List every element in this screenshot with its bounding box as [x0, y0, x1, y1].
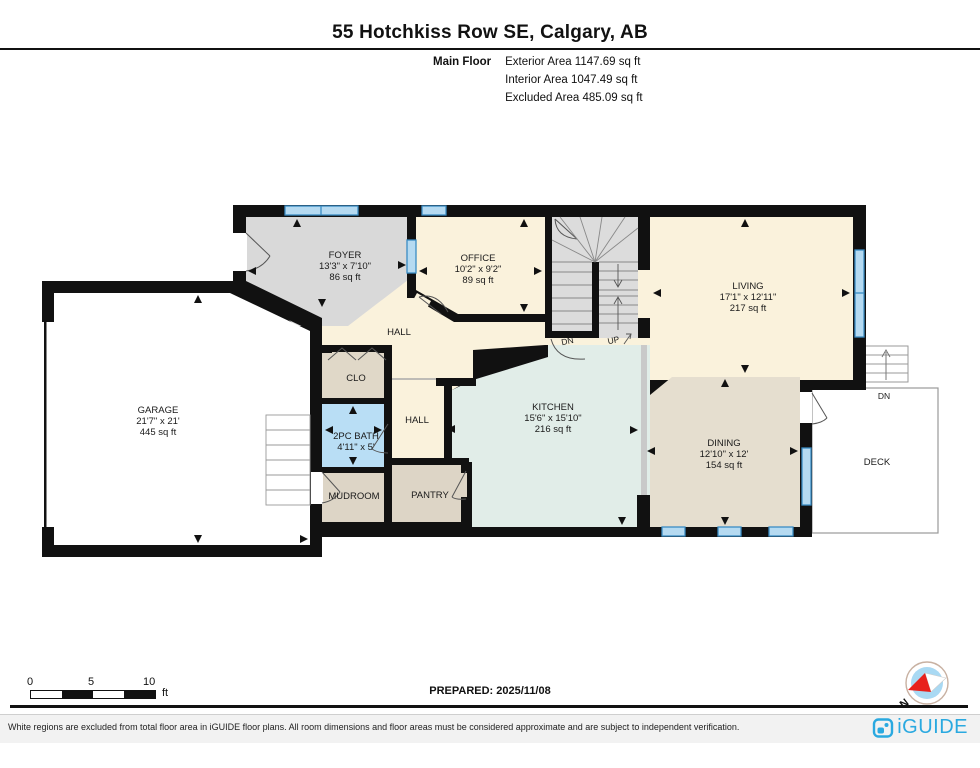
floorplan-page: 55 Hotchkiss Row SE, Calgary, AB Main Fl… — [0, 0, 980, 768]
label-pantry: PANTRY — [411, 490, 449, 501]
svg-text:15'6" x 15'10": 15'6" x 15'10" — [524, 413, 581, 424]
label-mudroom: MUDROOM — [328, 491, 379, 502]
svg-text:445 sq ft: 445 sq ft — [140, 427, 177, 438]
label-hall-lower: HALL — [405, 415, 429, 426]
kitchen-dining-divider — [641, 345, 647, 495]
garage-steps — [266, 415, 310, 505]
label-deck: DECK — [864, 457, 891, 468]
svg-text:86 sq ft: 86 sq ft — [329, 272, 361, 283]
footer-divider — [10, 705, 968, 708]
svg-text:10'2" x 9'2": 10'2" x 9'2" — [455, 264, 502, 275]
svg-text:GARAGE: GARAGE — [138, 405, 179, 416]
svg-text:4'11" x 5': 4'11" x 5' — [337, 442, 375, 453]
svg-text:LIVING: LIVING — [732, 281, 763, 292]
svg-text:OFFICE: OFFICE — [461, 253, 496, 264]
iguide-logo-text: iGUIDE — [897, 716, 968, 739]
iguide-logo-icon — [872, 717, 894, 739]
disclaimer-text: White regions are excluded from total fl… — [8, 722, 739, 732]
label-garage: GARAGE 21'7" x 21' 445 sq ft — [136, 405, 180, 438]
svg-text:13'3" x 7'10": 13'3" x 7'10" — [319, 261, 371, 272]
deck-stairs — [864, 346, 908, 382]
svg-text:KITCHEN: KITCHEN — [532, 402, 574, 413]
compass-north-label: N — [898, 697, 911, 711]
svg-text:89 sq ft: 89 sq ft — [462, 275, 494, 286]
prepared-date: PREPARED: 2025/11/08 — [0, 685, 980, 697]
label-deck-dn: DN — [878, 391, 890, 401]
floorplan-drawing: FOYER 13'3" x 7'10" 86 sq ft OFFICE 10'2… — [0, 0, 980, 768]
svg-text:21'7" x 21': 21'7" x 21' — [136, 416, 180, 427]
svg-text:17'1" x 12'11": 17'1" x 12'11" — [720, 292, 777, 303]
svg-text:12'10" x 12': 12'10" x 12' — [700, 449, 749, 460]
footer-bar: White regions are excluded from total fl… — [0, 714, 980, 743]
label-hall-upper: HALL — [387, 327, 411, 338]
iguide-logo: iGUIDE — [872, 716, 968, 739]
svg-text:217 sq ft: 217 sq ft — [730, 303, 767, 314]
svg-text:DINING: DINING — [707, 438, 740, 449]
svg-text:2PC BATH: 2PC BATH — [333, 431, 379, 442]
svg-text:216 sq ft: 216 sq ft — [535, 424, 572, 435]
svg-text:154 sq ft: 154 sq ft — [706, 460, 743, 471]
svg-text:FOYER: FOYER — [329, 250, 362, 261]
label-bath: 2PC BATH 4'11" x 5' — [333, 431, 379, 453]
label-closet: CLO — [346, 373, 366, 384]
